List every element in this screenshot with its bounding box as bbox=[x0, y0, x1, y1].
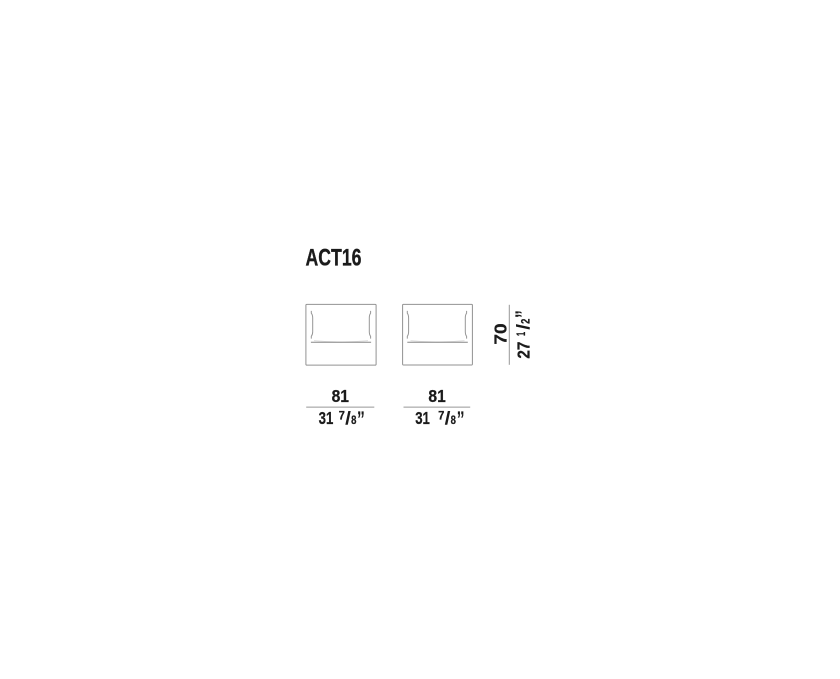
svg-text:81: 81 bbox=[332, 386, 350, 406]
svg-text:/: / bbox=[445, 407, 451, 428]
svg-text:2: 2 bbox=[519, 319, 533, 324]
svg-text:81: 81 bbox=[428, 386, 446, 406]
svg-text:1: 1 bbox=[514, 332, 528, 336]
svg-text:7: 7 bbox=[339, 409, 345, 423]
svg-text:27: 27 bbox=[513, 342, 533, 359]
svg-text:31: 31 bbox=[319, 408, 334, 428]
svg-text:70: 70 bbox=[491, 323, 511, 344]
svg-text:8: 8 bbox=[451, 413, 456, 427]
svg-text:7: 7 bbox=[438, 409, 444, 423]
svg-text:’’: ’’ bbox=[357, 408, 364, 431]
svg-text:8: 8 bbox=[351, 413, 356, 427]
svg-text:31: 31 bbox=[415, 408, 430, 428]
svg-text:’’: ’’ bbox=[512, 311, 535, 318]
svg-text:’’: ’’ bbox=[457, 408, 464, 431]
svg-text:ACT16: ACT16 bbox=[306, 245, 362, 272]
